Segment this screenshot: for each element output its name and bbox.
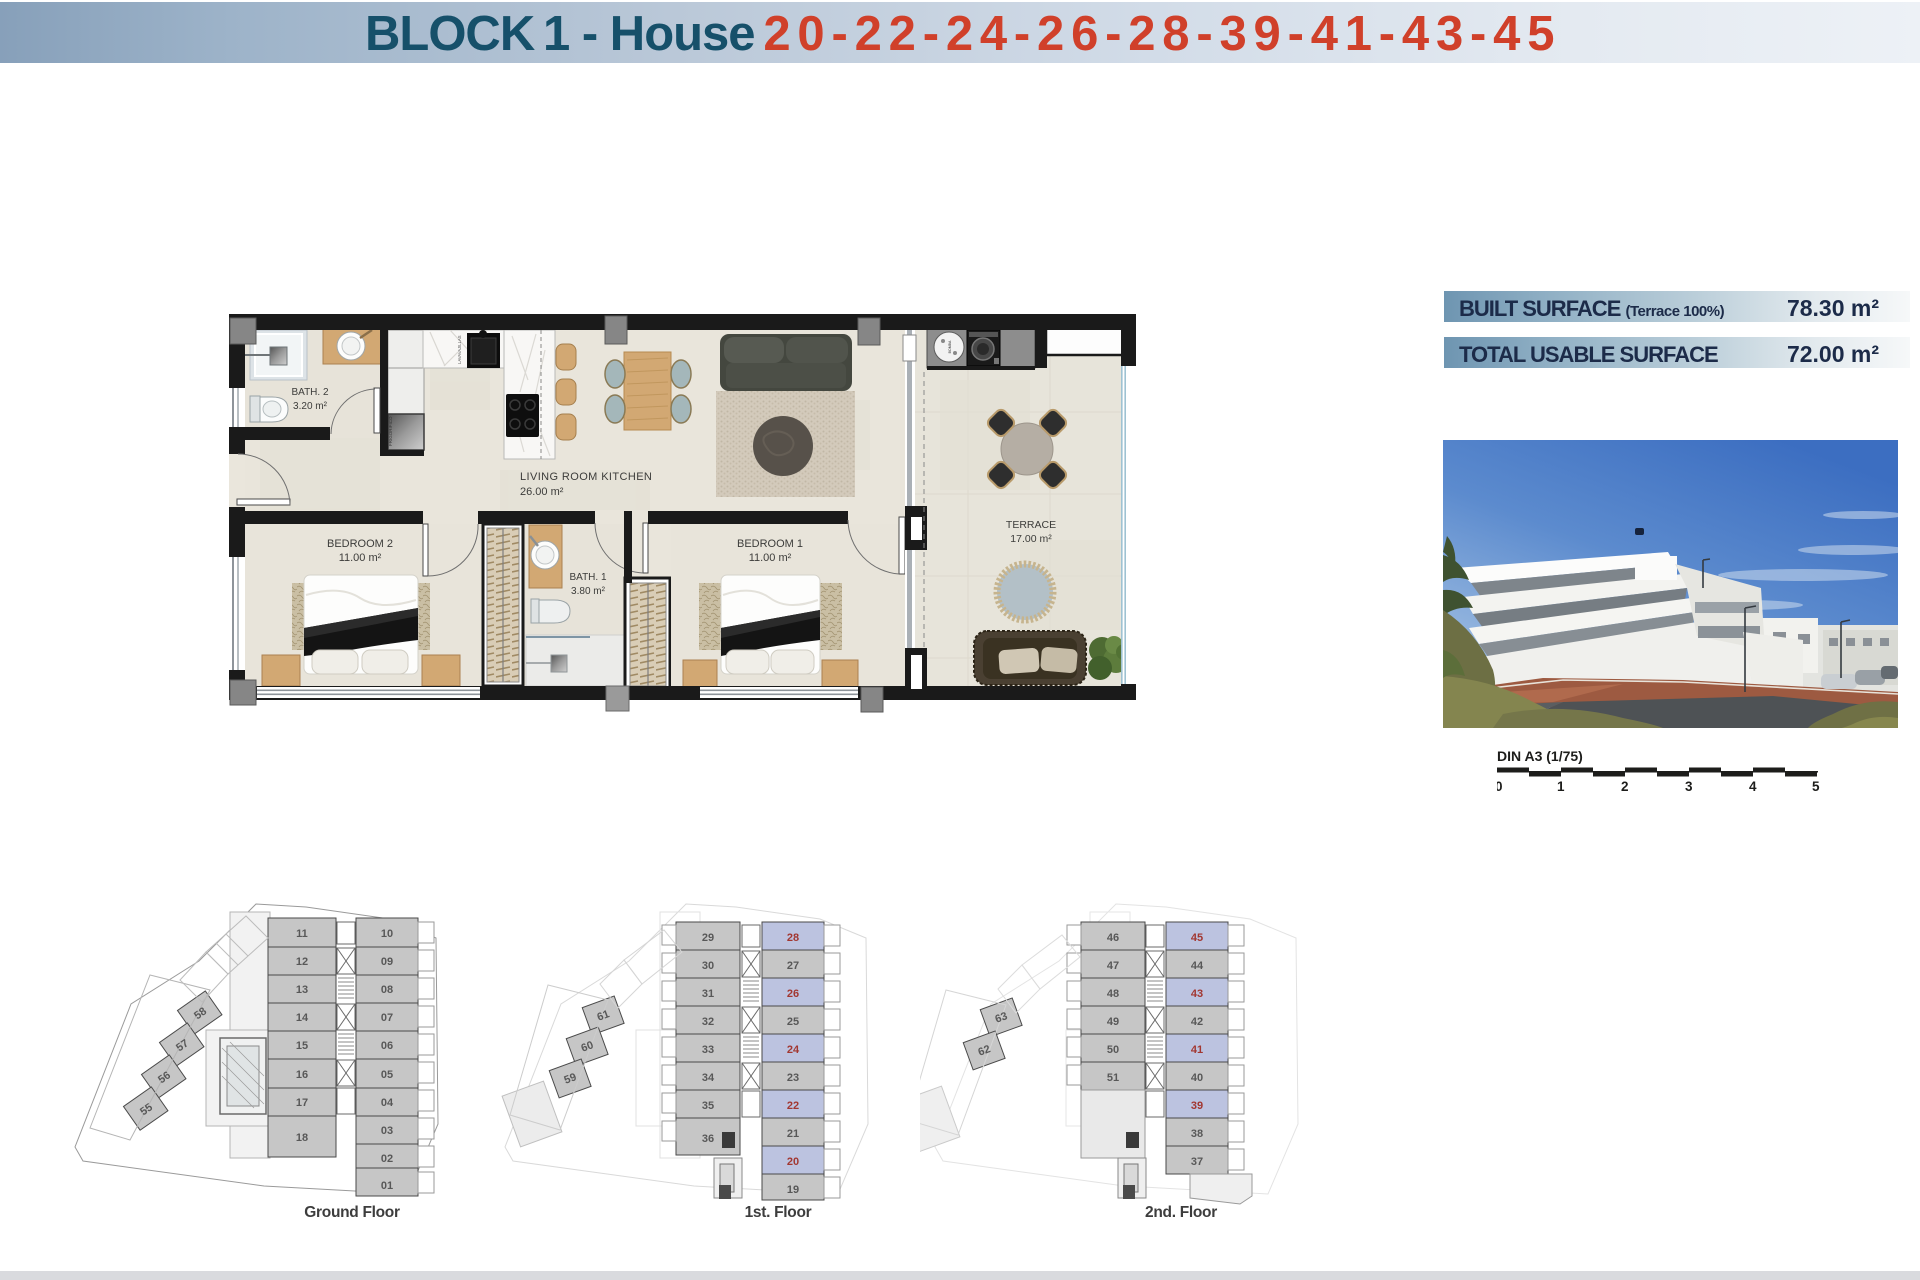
svg-text:46: 46 (1107, 932, 1119, 944)
svg-text:17: 17 (296, 1097, 308, 1109)
svg-text:TERRACE: TERRACE (1006, 519, 1056, 531)
svg-text:42: 42 (1191, 1016, 1203, 1028)
svg-text:35: 35 (702, 1100, 714, 1112)
svg-text:22: 22 (787, 1100, 799, 1112)
svg-text:03: 03 (381, 1125, 393, 1137)
svg-text:48: 48 (1107, 988, 1119, 1000)
svg-text:49: 49 (1107, 1016, 1119, 1028)
svg-text:FRIGORIFICO: FRIGORIFICO (388, 416, 393, 446)
svg-text:33: 33 (702, 1044, 714, 1056)
svg-text:07: 07 (381, 1012, 393, 1024)
svg-text:06: 06 (381, 1040, 393, 1052)
svg-text:36: 36 (702, 1133, 714, 1145)
svg-text:Ground Floor: Ground Floor (304, 1204, 400, 1221)
svg-text:51: 51 (1107, 1072, 1119, 1084)
svg-text:04: 04 (381, 1097, 394, 1109)
svg-text:3.80 m²: 3.80 m² (571, 586, 606, 597)
svg-text:39: 39 (1191, 1100, 1203, 1112)
svg-text:26: 26 (787, 988, 799, 1000)
svg-text:30: 30 (702, 960, 714, 972)
svg-text:19: 19 (787, 1184, 799, 1196)
svg-text:BEDROOM 1: BEDROOM 1 (737, 538, 803, 550)
svg-text:44: 44 (1191, 960, 1204, 972)
svg-text:40: 40 (1191, 1072, 1203, 1084)
svg-text:BATH. 1: BATH. 1 (569, 572, 606, 583)
svg-text:13: 13 (296, 984, 308, 996)
svg-text:11.00 m²: 11.00 m² (339, 552, 382, 564)
svg-text:4: 4 (1749, 779, 1757, 794)
svg-text:47: 47 (1107, 960, 1119, 972)
svg-text:3.20 m²: 3.20 m² (293, 401, 328, 412)
svg-text:1: 1 (1557, 779, 1565, 794)
svg-text:21: 21 (787, 1128, 799, 1140)
svg-text:0: 0 (1497, 779, 1503, 794)
svg-text:17.00 m²: 17.00 m² (1010, 533, 1052, 545)
svg-text:11: 11 (296, 928, 308, 940)
svg-text:15: 15 (296, 1040, 308, 1052)
svg-text:28: 28 (787, 932, 799, 944)
svg-text:37: 37 (1191, 1156, 1203, 1168)
svg-text:3: 3 (1685, 779, 1693, 794)
svg-text:29: 29 (702, 932, 714, 944)
svg-text:LIVING ROOM KITCHEN: LIVING ROOM KITCHEN (520, 471, 652, 483)
svg-text:26.00 m²: 26.00 m² (520, 486, 564, 498)
svg-text:2nd. Floor: 2nd. Floor (1145, 1204, 1217, 1221)
svg-text:08: 08 (381, 984, 393, 996)
svg-text:38: 38 (1191, 1128, 1203, 1140)
svg-text:05: 05 (381, 1069, 393, 1081)
svg-text:02: 02 (381, 1153, 393, 1165)
svg-text:BATH. 2: BATH. 2 (291, 387, 328, 398)
svg-text:BEDROOM 2: BEDROOM 2 (327, 538, 393, 550)
svg-text:25: 25 (787, 1016, 799, 1028)
svg-text:23: 23 (787, 1072, 799, 1084)
svg-text:1st. Floor: 1st. Floor (745, 1204, 812, 1221)
svg-text:BOMBA: BOMBA (948, 340, 952, 353)
svg-text:50: 50 (1107, 1044, 1119, 1056)
svg-text:31: 31 (702, 988, 714, 1000)
svg-text:10: 10 (381, 928, 393, 940)
svg-text:09: 09 (381, 956, 393, 968)
svg-text:43: 43 (1191, 988, 1203, 1000)
svg-text:27: 27 (787, 960, 799, 972)
svg-text:24: 24 (787, 1044, 800, 1056)
svg-text:2: 2 (1621, 779, 1629, 794)
svg-text:01: 01 (381, 1180, 393, 1192)
svg-text:32: 32 (702, 1016, 714, 1028)
svg-text:16: 16 (296, 1069, 308, 1081)
svg-text:11.00 m²: 11.00 m² (749, 552, 792, 564)
svg-text:20: 20 (787, 1156, 799, 1168)
svg-text:DIN A3 (1/75): DIN A3 (1/75) (1497, 748, 1583, 764)
svg-text:14: 14 (296, 1012, 309, 1024)
svg-text:34: 34 (702, 1072, 715, 1084)
svg-text:12: 12 (296, 956, 308, 968)
svg-text:45: 45 (1191, 932, 1203, 944)
svg-text:LAVAVAJILLAS: LAVAVAJILLAS (457, 335, 462, 364)
svg-text:18: 18 (296, 1132, 308, 1144)
svg-text:41: 41 (1191, 1044, 1203, 1056)
svg-text:5: 5 (1812, 779, 1820, 794)
